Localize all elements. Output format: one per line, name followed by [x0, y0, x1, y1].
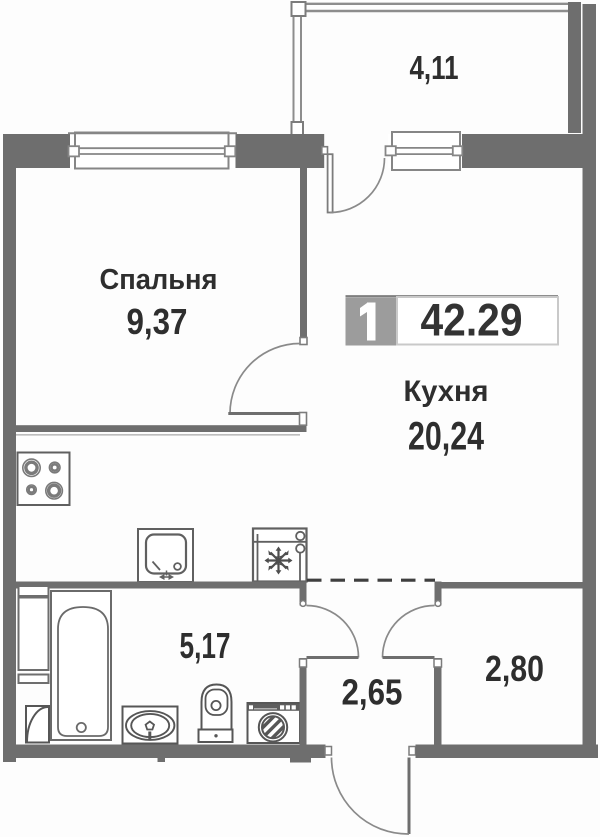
svg-text:4,11: 4,11 — [410, 49, 459, 86]
svg-text:2,65: 2,65 — [342, 672, 403, 713]
svg-text:9,37: 9,37 — [127, 301, 188, 342]
svg-text:2,80: 2,80 — [485, 648, 544, 689]
svg-text:5,17: 5,17 — [180, 625, 231, 666]
svg-text:Кухня: Кухня — [404, 375, 489, 408]
svg-text:42.29: 42.29 — [421, 295, 523, 346]
svg-text:20,24: 20,24 — [408, 415, 485, 459]
svg-text:Спальня: Спальня — [100, 264, 218, 296]
